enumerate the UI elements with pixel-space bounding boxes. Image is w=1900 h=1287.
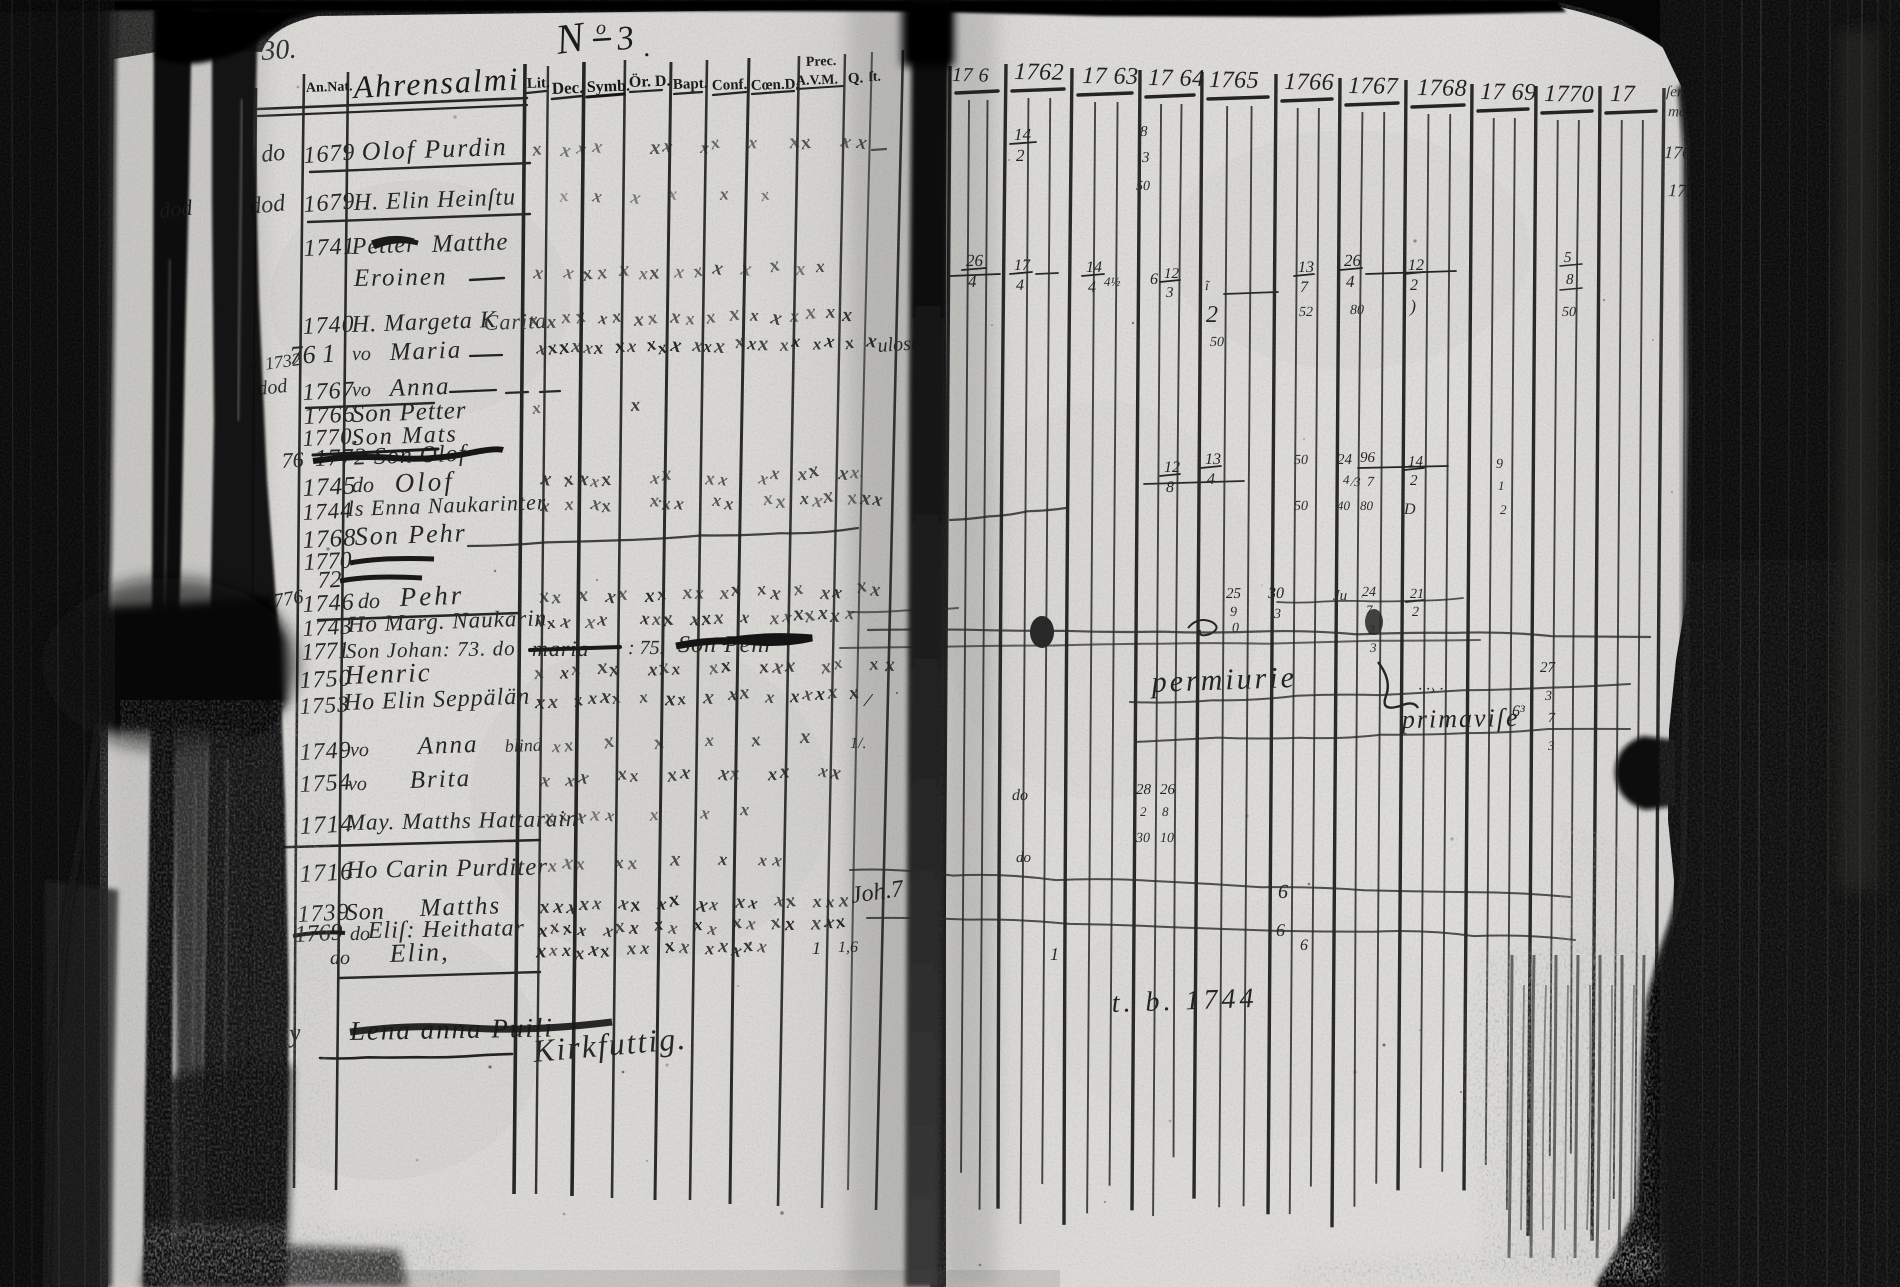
svg-text:26: 26 <box>1160 782 1176 798</box>
svg-text:14: 14 <box>1086 259 1102 276</box>
svg-text:x: x <box>691 914 703 935</box>
svg-text:x: x <box>639 937 650 958</box>
svg-text:Son Pehr: Son Pehr <box>354 518 467 551</box>
svg-text:x: x <box>837 889 849 911</box>
svg-text:x: x <box>799 724 811 748</box>
svg-text:do: do <box>1012 787 1028 804</box>
svg-text:2: 2 <box>1410 277 1418 294</box>
svg-text:x: x <box>825 892 835 911</box>
svg-text:x: x <box>617 257 629 281</box>
svg-text:80: 80 <box>1350 303 1364 318</box>
svg-text:vo: vo <box>348 773 367 795</box>
svg-text:x: x <box>712 606 724 629</box>
svg-text:o: o <box>596 17 606 39</box>
svg-text:50: 50 <box>1136 179 1150 194</box>
svg-text:x: x <box>789 306 799 326</box>
svg-text:8: 8 <box>1140 124 1148 140</box>
svg-text:6: 6 <box>1300 937 1308 954</box>
svg-text:1741: 1741 <box>303 233 356 262</box>
svg-text:30: 30 <box>1267 585 1284 602</box>
svg-text:x: x <box>841 304 852 326</box>
svg-text:x: x <box>794 259 806 280</box>
svg-text:x: x <box>656 893 668 914</box>
svg-text:9: 9 <box>1496 457 1503 472</box>
svg-text:96: 96 <box>1360 450 1376 466</box>
svg-text:1679: 1679 <box>303 139 357 169</box>
svg-text:27: 27 <box>1540 660 1557 676</box>
svg-text:x: x <box>548 940 559 959</box>
svg-text:4½: 4½ <box>1104 274 1121 289</box>
svg-text:x: x <box>539 495 551 516</box>
svg-text:vo: vo <box>352 343 371 365</box>
svg-text:x: x <box>659 463 672 486</box>
svg-text:17 6: 17 6 <box>952 64 989 87</box>
svg-text:x: x <box>849 462 860 483</box>
svg-text:4: 4 <box>1343 472 1350 487</box>
svg-text:8: 8 <box>1566 272 1574 288</box>
svg-text:do: do <box>352 472 374 497</box>
svg-text:x: x <box>660 493 671 513</box>
svg-text:x: x <box>551 895 564 918</box>
svg-text:x: x <box>574 853 585 873</box>
svg-text:25: 25 <box>1226 586 1242 602</box>
svg-text:Brita: Brita <box>409 765 471 794</box>
svg-text:3: 3 <box>1141 150 1150 166</box>
svg-text:x: x <box>670 659 681 679</box>
svg-text:x: x <box>746 333 758 354</box>
svg-text:x: x <box>538 896 551 919</box>
svg-text:1765: 1765 <box>1209 67 1259 94</box>
svg-text:x: x <box>883 654 895 676</box>
svg-text:3: 3 <box>1544 689 1552 704</box>
svg-text:Pehr: Pehr <box>398 580 464 612</box>
svg-text:x: x <box>704 938 714 958</box>
svg-text:ſt.: ſt. <box>869 70 882 85</box>
svg-text:x: x <box>836 462 849 485</box>
svg-text:x: x <box>803 299 817 324</box>
svg-text:x: x <box>616 583 629 606</box>
svg-text:1: 1 <box>1050 944 1059 964</box>
svg-text:Ho Carin Purditer: Ho Carin Purditer <box>345 853 549 884</box>
svg-text:50: 50 <box>1562 305 1576 320</box>
svg-text:80: 80 <box>1360 498 1374 513</box>
svg-text:x: x <box>824 302 836 323</box>
svg-text:7: 7 <box>1300 279 1309 296</box>
svg-text:x: x <box>859 485 872 510</box>
svg-text:x: x <box>729 763 740 784</box>
svg-text:x: x <box>668 305 681 328</box>
svg-text:3: 3 <box>1369 640 1377 655</box>
svg-text:7: 7 <box>1548 711 1556 726</box>
svg-text:x: x <box>559 663 569 683</box>
svg-text:x: x <box>545 312 557 334</box>
svg-text:1/.: 1/. <box>850 735 866 752</box>
svg-text:x: x <box>747 132 758 152</box>
svg-text:x: x <box>570 335 582 357</box>
svg-text:4: 4 <box>1016 277 1024 294</box>
svg-text:3: 3 <box>1273 607 1281 622</box>
svg-text:do: do <box>1016 850 1032 866</box>
svg-text:6: 6 <box>1278 881 1288 903</box>
svg-text:3: 3 <box>1165 285 1174 301</box>
svg-text:vo: vo <box>350 739 369 761</box>
svg-text:x: x <box>627 765 639 786</box>
svg-text:1762: 1762 <box>1014 59 1064 86</box>
svg-text:9: 9 <box>1230 605 1237 620</box>
svg-text:x: x <box>679 761 692 784</box>
svg-text:x: x <box>799 488 809 508</box>
svg-text:x: x <box>789 686 800 707</box>
svg-text:x: x <box>717 935 730 958</box>
svg-text:40: 40 <box>1337 498 1351 513</box>
svg-text:x: x <box>766 764 778 786</box>
svg-text:x: x <box>546 855 557 875</box>
svg-text:x: x <box>563 494 574 515</box>
svg-text:x: x <box>702 337 713 357</box>
svg-text:.: . <box>644 32 651 63</box>
svg-text:x: x <box>629 394 641 416</box>
svg-text:17 69: 17 69 <box>1480 79 1537 106</box>
svg-text:x: x <box>811 334 822 353</box>
svg-text:x: x <box>651 609 661 629</box>
svg-text:x: x <box>790 330 801 350</box>
svg-text:x: x <box>561 940 571 960</box>
svg-text:17 64: 17 64 <box>1148 65 1205 92</box>
svg-text:17 63: 17 63 <box>1082 63 1139 90</box>
svg-text:2: 2 <box>1140 804 1147 819</box>
svg-text:blind: blind <box>504 735 543 756</box>
svg-text:2: 2 <box>1410 473 1418 489</box>
svg-text:1770: 1770 <box>1544 81 1594 108</box>
svg-text:Elin,: Elin, <box>388 937 450 968</box>
svg-text:x: x <box>783 913 795 935</box>
svg-text:1766: 1766 <box>1284 69 1334 96</box>
svg-text:2: 2 <box>1206 302 1218 328</box>
svg-text:7: 7 <box>1367 475 1375 490</box>
svg-text:5: 5 <box>1564 250 1572 266</box>
svg-text:x: x <box>817 602 828 624</box>
svg-text:x: x <box>717 849 728 870</box>
svg-text:Henric: Henric <box>343 657 432 690</box>
svg-text:x: x <box>819 582 832 605</box>
svg-text:x: x <box>829 605 840 627</box>
svg-text:x: x <box>810 910 822 934</box>
svg-text:1771: 1771 <box>301 638 350 666</box>
svg-text:primaviſe: primaviſe <box>1400 703 1520 734</box>
svg-text:x: x <box>811 891 822 912</box>
svg-text:vo: vo <box>352 379 371 401</box>
svg-text:Prec.: Prec. <box>806 54 837 70</box>
svg-text:x: x <box>778 335 789 355</box>
svg-text:50: 50 <box>1294 453 1308 468</box>
svg-text:6: 6 <box>1150 271 1158 288</box>
svg-text:8: 8 <box>1166 479 1174 496</box>
svg-text:x: x <box>667 184 677 204</box>
svg-text:x: x <box>547 691 558 713</box>
svg-text:An.Nat.: An.Nat. <box>306 79 353 96</box>
svg-text:x: x <box>814 256 825 276</box>
svg-text:30: 30 <box>1135 831 1150 846</box>
svg-text:x: x <box>739 799 750 819</box>
svg-text:x: x <box>584 611 597 634</box>
svg-text:24: 24 <box>1337 452 1353 468</box>
svg-text:x: x <box>628 917 640 939</box>
svg-text:x: x <box>534 691 546 714</box>
svg-text:D: D <box>1403 501 1416 518</box>
svg-text:Dec.: Dec. <box>551 78 583 98</box>
svg-text:17: 17 <box>1610 81 1636 107</box>
svg-text:50: 50 <box>1294 499 1308 514</box>
svg-text:Q.: Q. <box>848 70 864 87</box>
svg-text:x: x <box>749 306 759 325</box>
svg-text:x: x <box>693 582 704 602</box>
svg-text:x: x <box>769 462 781 483</box>
svg-text:x: x <box>613 852 624 872</box>
svg-text:x: x <box>684 308 695 329</box>
svg-text:x: x <box>723 493 734 514</box>
svg-text:x: x <box>664 686 676 710</box>
svg-text:26: 26 <box>966 251 984 270</box>
svg-text:1679: 1679 <box>303 188 357 218</box>
svg-text:x: x <box>713 333 726 358</box>
svg-text:x: x <box>669 846 681 870</box>
svg-text:x: x <box>704 468 716 490</box>
svg-text:x: x <box>591 893 603 914</box>
svg-text:x: x <box>535 938 547 962</box>
svg-text:1: 1 <box>812 938 821 958</box>
svg-text:x: x <box>648 490 660 512</box>
svg-text:t. b. 1744: t. b. 1744 <box>1111 983 1258 1019</box>
svg-text:1740: 1740 <box>302 311 355 340</box>
svg-text:Ör. D.: Ör. D. <box>629 72 671 91</box>
svg-text:dod: dod <box>158 195 194 223</box>
svg-text:x: x <box>589 803 601 826</box>
svg-text:· ·› ·: · ·› · <box>1418 681 1443 698</box>
svg-text:x: x <box>814 683 826 705</box>
svg-text:26: 26 <box>1344 251 1362 270</box>
svg-text:x: x <box>648 804 660 825</box>
svg-text:1: 1 <box>1498 478 1505 493</box>
svg-text:x: x <box>737 681 750 704</box>
svg-text:x: x <box>587 688 597 708</box>
svg-text:1744: 1744 <box>302 497 353 525</box>
svg-text:14: 14 <box>1014 125 1032 144</box>
svg-text:x: x <box>704 730 714 750</box>
svg-text:x: x <box>632 308 644 330</box>
svg-text:H. Margeta K: H. Margeta K <box>350 307 498 338</box>
svg-text:4: 4 <box>1207 471 1215 488</box>
svg-text:x: x <box>711 490 722 510</box>
svg-text:4: 4 <box>1346 272 1355 291</box>
svg-text:Eroinen: Eroinen <box>353 263 448 292</box>
svg-text:x: x <box>578 893 589 915</box>
svg-text:x: x <box>638 263 648 283</box>
svg-text:Anna: Anna <box>415 731 479 760</box>
svg-text:x: x <box>718 183 729 204</box>
svg-text:6: 6 <box>1276 920 1285 940</box>
svg-text:2: 2 <box>1412 605 1419 620</box>
svg-text:x: x <box>734 890 747 913</box>
svg-text:2: 2 <box>1016 146 1025 165</box>
svg-text:x: x <box>764 686 776 707</box>
svg-text:10: 10 <box>1160 831 1174 846</box>
svg-text:x: x <box>626 335 637 356</box>
svg-text:3: 3 <box>1547 738 1555 753</box>
svg-text:x: x <box>573 943 585 964</box>
svg-text:Matthe: Matthe <box>430 228 509 258</box>
svg-text:): ) <box>1409 296 1416 316</box>
svg-text:1,6: 1,6 <box>838 939 858 956</box>
svg-text:do: do <box>330 947 350 969</box>
svg-text:Lit.: Lit. <box>527 75 551 92</box>
svg-text:x: x <box>550 587 562 609</box>
svg-text:x: x <box>768 608 780 629</box>
svg-text:1767: 1767 <box>1348 73 1399 100</box>
svg-text:Maria: Maria <box>388 336 462 366</box>
svg-text:x: x <box>649 135 661 159</box>
svg-text:x: x <box>784 654 796 676</box>
svg-text:x: x <box>677 936 690 959</box>
svg-text:x: x <box>757 331 769 355</box>
svg-text:50: 50 <box>1210 335 1224 350</box>
svg-text:permiurie: permiurie <box>1149 661 1297 699</box>
svg-text:x: x <box>826 681 839 704</box>
svg-text:8: 8 <box>1162 804 1169 819</box>
svg-text:x: x <box>592 338 604 360</box>
svg-text:x: x <box>774 490 787 513</box>
svg-text:0: 0 <box>1232 621 1239 636</box>
svg-text:4: 4 <box>1088 279 1096 296</box>
svg-text:x: x <box>869 578 882 601</box>
svg-text:x: x <box>702 684 715 709</box>
svg-text:Olof Purdin: Olof Purdin <box>361 132 508 166</box>
svg-text:x: x <box>778 760 791 783</box>
svg-text:Bapt.: Bapt. <box>673 76 708 93</box>
svg-text:1768: 1768 <box>1417 75 1467 102</box>
svg-text:x: x <box>626 853 638 875</box>
svg-text:x: x <box>718 583 730 605</box>
svg-text:28: 28 <box>1136 782 1152 798</box>
svg-text:x: x <box>727 684 739 706</box>
svg-text:x: x <box>680 581 693 604</box>
svg-text:do: do <box>358 588 380 613</box>
svg-text:2: 2 <box>1500 502 1507 517</box>
svg-text:76: 76 <box>281 447 304 473</box>
svg-text:x: x <box>643 585 655 608</box>
svg-text:x: x <box>576 582 589 607</box>
svg-text:x: x <box>625 938 637 959</box>
svg-text:52: 52 <box>1299 305 1313 320</box>
svg-text:24: 24 <box>1362 585 1376 600</box>
